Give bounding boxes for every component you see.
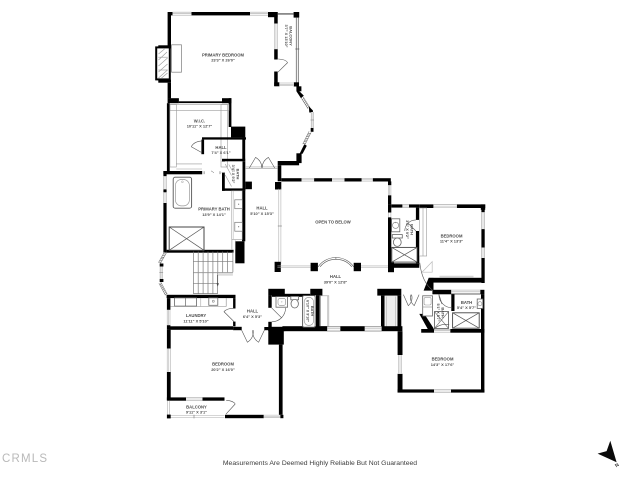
svg-text:13'9" X 14'1": 13'9" X 14'1" [202, 212, 226, 217]
svg-text:11'4" X 13'3": 11'4" X 13'3" [440, 239, 463, 244]
svg-text:14'3" X 17'6": 14'3" X 17'6" [431, 362, 455, 367]
svg-text:5'4" X 5'7": 5'4" X 5'7" [457, 305, 476, 310]
svg-text:BEDROOM: BEDROOM [432, 357, 454, 362]
svg-text:BATH: BATH [409, 224, 414, 235]
svg-text:3'4" X 9'2": 3'4" X 9'2" [231, 165, 235, 184]
svg-text:BEDROOM: BEDROOM [441, 234, 463, 239]
svg-text:BEDROOM: BEDROOM [212, 362, 234, 367]
svg-text:7'4" X 6'1": 7'4" X 6'1" [211, 150, 230, 155]
svg-text:BATH: BATH [441, 307, 445, 318]
svg-text:3'7" X 13'10": 3'7" X 13'10" [284, 25, 288, 48]
svg-text:CRMLS: CRMLS [2, 453, 48, 465]
svg-text:BALCONY: BALCONY [289, 26, 294, 46]
svg-text:3'6" X 9'2": 3'6" X 9'2" [405, 220, 409, 239]
svg-text:9'11" X 3'1": 9'11" X 3'1" [186, 410, 207, 415]
svg-text:HALL: HALL [256, 206, 268, 211]
svg-text:W.I.C.: W.I.C. [194, 119, 205, 124]
svg-text:5'1" X 5'7": 5'1" X 5'7" [436, 304, 440, 322]
svg-text:OPEN TO BELOW: OPEN TO BELOW [315, 220, 351, 225]
svg-text:10'11" X 12'7": 10'11" X 12'7" [187, 124, 213, 129]
svg-text:11'11" X 5'10": 11'11" X 5'10" [183, 319, 208, 324]
svg-text:5'10" X 15'3": 5'10" X 15'3" [250, 211, 274, 216]
svg-text:20'2" X 16'0": 20'2" X 16'0" [211, 367, 235, 372]
svg-text:HALL: HALL [330, 274, 342, 279]
svg-text:BALCONY: BALCONY [186, 405, 207, 410]
svg-text:6'10" X 9'10": 6'10" X 9'10" [306, 300, 310, 322]
svg-text:39'0" X 12'8": 39'0" X 12'8" [324, 280, 348, 285]
svg-text:BATH: BATH [461, 300, 472, 305]
svg-text:HALL: HALL [247, 309, 259, 314]
svg-text:PRIMARY BATH: PRIMARY BATH [198, 207, 230, 212]
svg-text:BATH: BATH [235, 169, 240, 180]
svg-text:BATH: BATH [310, 306, 314, 317]
svg-text:23'3" X 26'0": 23'3" X 26'0" [211, 58, 235, 63]
svg-text:Measurements Are Deemed Highly: Measurements Are Deemed Highly Reliable … [223, 460, 417, 467]
svg-text:PRIMARY BEDROOM: PRIMARY BEDROOM [202, 53, 245, 58]
svg-text:6'4" X 5'3": 6'4" X 5'3" [243, 314, 262, 319]
svg-text:HALL: HALL [215, 145, 227, 150]
svg-text:LAUNDRY: LAUNDRY [186, 313, 207, 318]
